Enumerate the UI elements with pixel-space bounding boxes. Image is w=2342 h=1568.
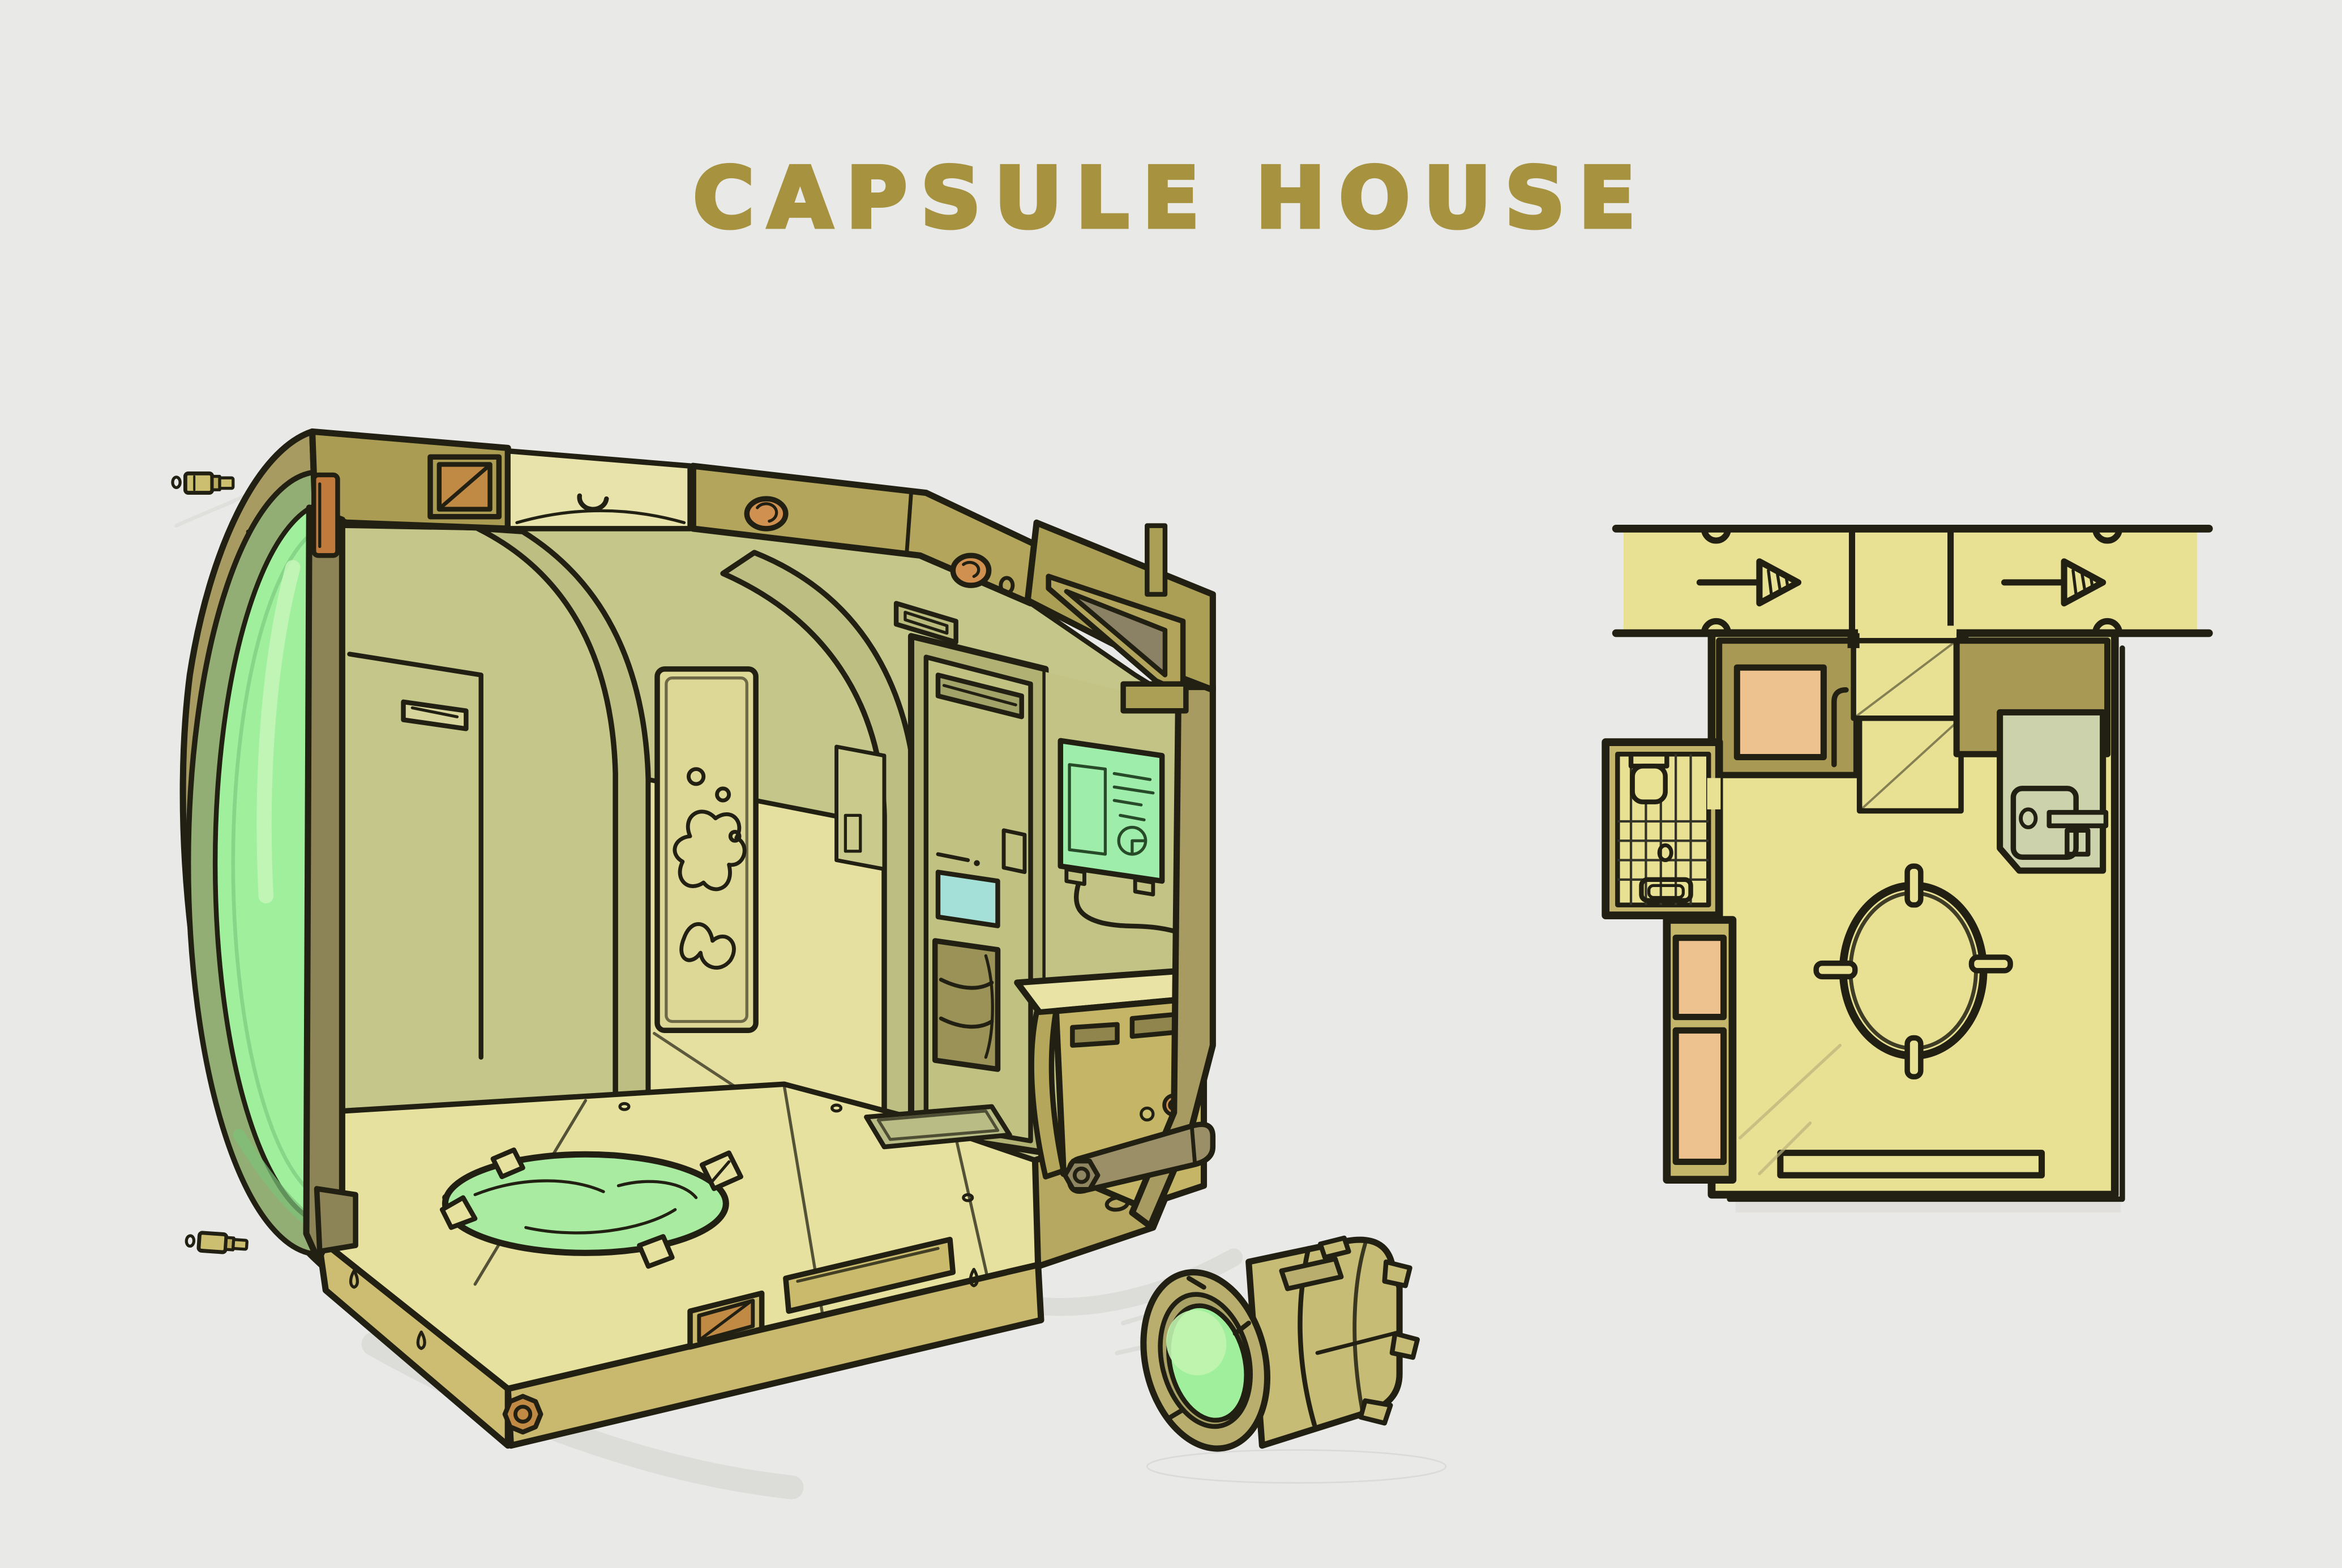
capsule-house-illustration: CAPSULE HOUSE — [0, 0, 2342, 1568]
entry-door — [911, 636, 1045, 1153]
bracket-latch — [1147, 526, 1165, 594]
plan-storage-column — [1667, 920, 1732, 1180]
plan-unit — [1605, 626, 2122, 1199]
door-dot — [974, 860, 980, 867]
hatch-tick-top — [1907, 866, 1921, 905]
pillar-foot-block — [317, 1189, 356, 1252]
bolt-body — [199, 1233, 227, 1253]
closet-locker-orange — [1737, 667, 1823, 757]
bolt-tip — [233, 1240, 247, 1249]
sink-faucet-bar — [2049, 812, 2106, 826]
capsule-lug — [1361, 1401, 1391, 1424]
table-small-knob — [1141, 1108, 1153, 1120]
toilet-bowl — [1633, 766, 1665, 802]
hatch-tick-bottom — [1907, 1038, 1921, 1077]
beam-knob — [953, 555, 988, 585]
plan-entry-step — [1780, 1153, 2042, 1176]
bolt-tip — [220, 478, 233, 488]
bolt-body — [185, 473, 212, 492]
door-shelf-niche — [935, 941, 998, 1069]
shadow-under-capsule — [1147, 1450, 1446, 1483]
bolt-washer — [186, 1236, 194, 1246]
capsule-exterior-view — [1118, 1238, 1418, 1462]
pillar-handle-orange — [314, 475, 337, 555]
dashboard-mount-tab — [1067, 869, 1085, 884]
floorplan-view — [1605, 529, 2209, 1199]
poster-door — [657, 669, 756, 1030]
plan-corridor — [1616, 529, 2209, 633]
capsule-lug — [1385, 1262, 1410, 1286]
dashboard-mount-tab — [1135, 880, 1153, 894]
bolt-washer — [173, 477, 180, 487]
plan-bathroom — [1605, 742, 1720, 915]
base-corner-bolt — [505, 1396, 541, 1432]
plan-sink-alcove — [2000, 712, 2106, 871]
floating-bolt-top — [173, 473, 233, 492]
table-slot-vent — [1072, 1025, 1117, 1046]
door-card-slot — [1004, 830, 1025, 872]
door-screen-teal — [938, 872, 998, 926]
column-locker-orange — [1676, 1030, 1723, 1162]
utility-panel — [837, 747, 884, 869]
capsule-lug — [1320, 1238, 1348, 1257]
corridor-bump — [1852, 529, 1950, 633]
cutaway-view — [173, 431, 1213, 1445]
bracket-foot — [1123, 684, 1186, 710]
hatch-tick-left — [1816, 963, 1855, 977]
column-locker-orange — [1676, 938, 1723, 1017]
pipe-bolt — [1065, 1161, 1098, 1189]
door-hinge-mark — [1848, 633, 1860, 648]
capsule-lug — [1392, 1334, 1418, 1357]
floating-bolt-bottom — [186, 1232, 247, 1254]
hatch-tick-right — [1972, 957, 2011, 971]
dashboard-screen — [1060, 740, 1162, 881]
bathroom-door-gap — [1707, 778, 1721, 809]
shadow-under-plan — [1736, 1201, 2121, 1213]
pillar-body — [306, 508, 342, 1261]
page-title: CAPSULE HOUSE — [693, 149, 1649, 247]
rug-green — [445, 1154, 726, 1253]
concept-art-canvas: CAPSULE HOUSE — [0, 0, 2342, 1568]
